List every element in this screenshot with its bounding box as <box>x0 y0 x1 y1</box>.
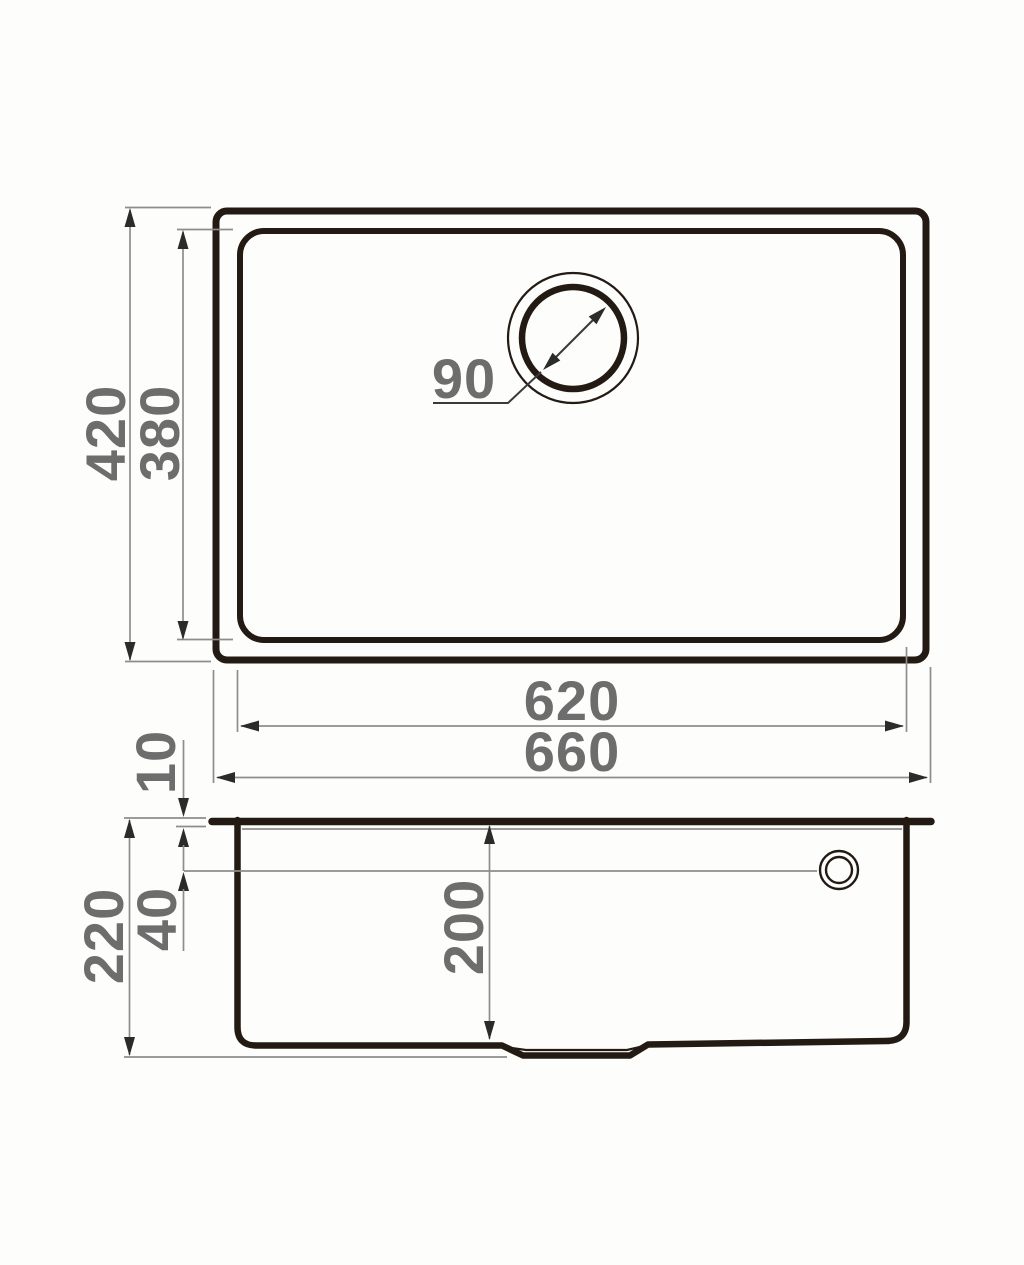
dim-label-660: 660 <box>524 724 620 780</box>
dim-620-arrow-right <box>885 721 904 732</box>
dim-620-arrow-left <box>240 721 259 732</box>
dim-label-220: 220 <box>76 888 132 984</box>
dim-label-380: 380 <box>132 385 188 481</box>
dim-label-10: 10 <box>128 730 184 794</box>
dim-label-90: 90 <box>432 351 496 407</box>
dim-420-arrow-bottom <box>125 642 136 661</box>
top-view <box>216 211 926 660</box>
dim-220-arrow-bottom <box>124 1037 135 1056</box>
sink-outer-rim-outline <box>216 211 926 660</box>
drain-inner-circle <box>522 287 624 389</box>
dim-10-arrow-up <box>178 828 189 847</box>
sink-technical-drawing: 420 380 90 620 660 10 40 220 200 <box>0 0 1024 1265</box>
dim-380-arrow-top <box>178 230 189 249</box>
dim-label-420: 420 <box>78 385 134 481</box>
dim-200-arrow-bottom <box>484 1021 495 1040</box>
dim-label-40: 40 <box>129 887 185 951</box>
dim-660-arrow-left <box>216 772 235 783</box>
overflow-inner-circle <box>826 857 852 883</box>
drain-recess-line <box>505 1046 646 1051</box>
dim-label-200: 200 <box>436 879 492 975</box>
side-view <box>184 820 931 1056</box>
bowl-profile-outline <box>238 820 907 1056</box>
dim-200-arrow-top <box>484 825 495 844</box>
dim-10-arrow-down <box>178 798 189 817</box>
dim-380-arrow-bottom <box>178 621 189 640</box>
drawing-linework <box>0 0 1024 1265</box>
dim-420-arrow-top <box>125 208 136 227</box>
bowl-inner-outline <box>240 231 903 640</box>
dim-220-arrow-top <box>124 819 135 838</box>
dim-660-arrow-right <box>909 772 928 783</box>
